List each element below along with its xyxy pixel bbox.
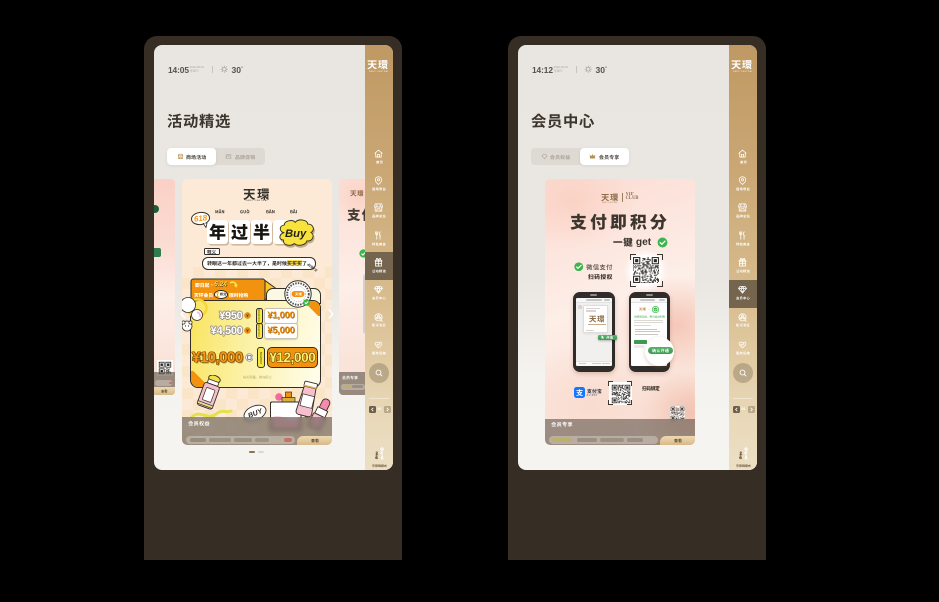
svg-text:Buy: Buy bbox=[285, 228, 307, 240]
